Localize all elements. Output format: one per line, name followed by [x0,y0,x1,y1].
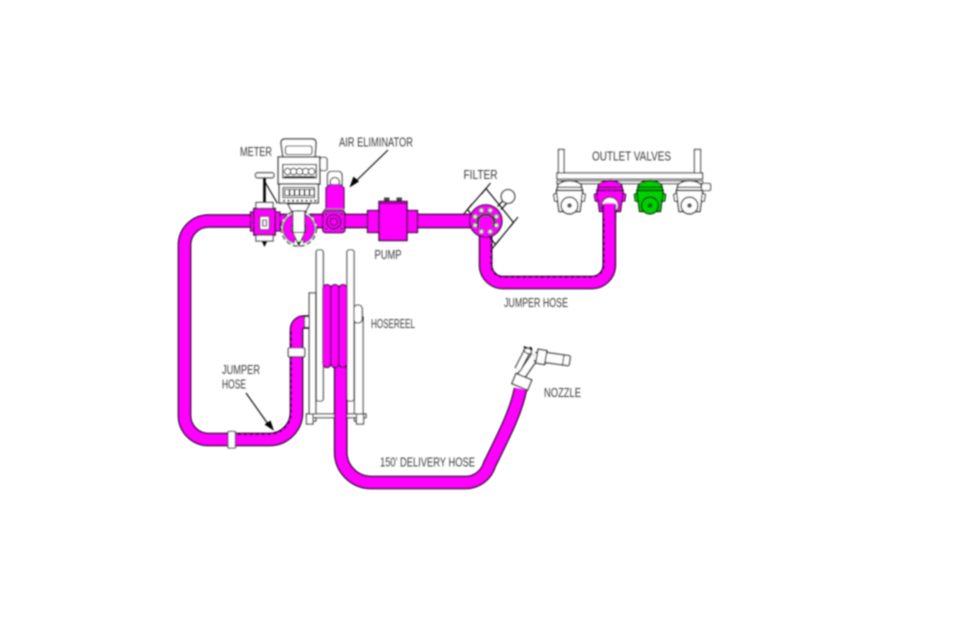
svg-text:NOZZLE: NOZZLE [544,386,581,400]
svg-text:HOSE: HOSE [222,377,246,391]
svg-text:OUTLET VALVES: OUTLET VALVES [592,150,671,164]
svg-text:PUMP: PUMP [375,248,402,262]
svg-text:FILTER: FILTER [464,168,498,182]
svg-text:JUMPER: JUMPER [222,363,260,377]
svg-text:AIR ELIMINATOR: AIR ELIMINATOR [339,135,413,149]
svg-text:JUMPER HOSE: JUMPER HOSE [504,296,568,310]
svg-text:METER: METER [240,145,272,159]
svg-text:HOSEREEL: HOSEREEL [371,317,415,331]
svg-text:150’ DELIVERY HOSE: 150’ DELIVERY HOSE [380,456,475,470]
